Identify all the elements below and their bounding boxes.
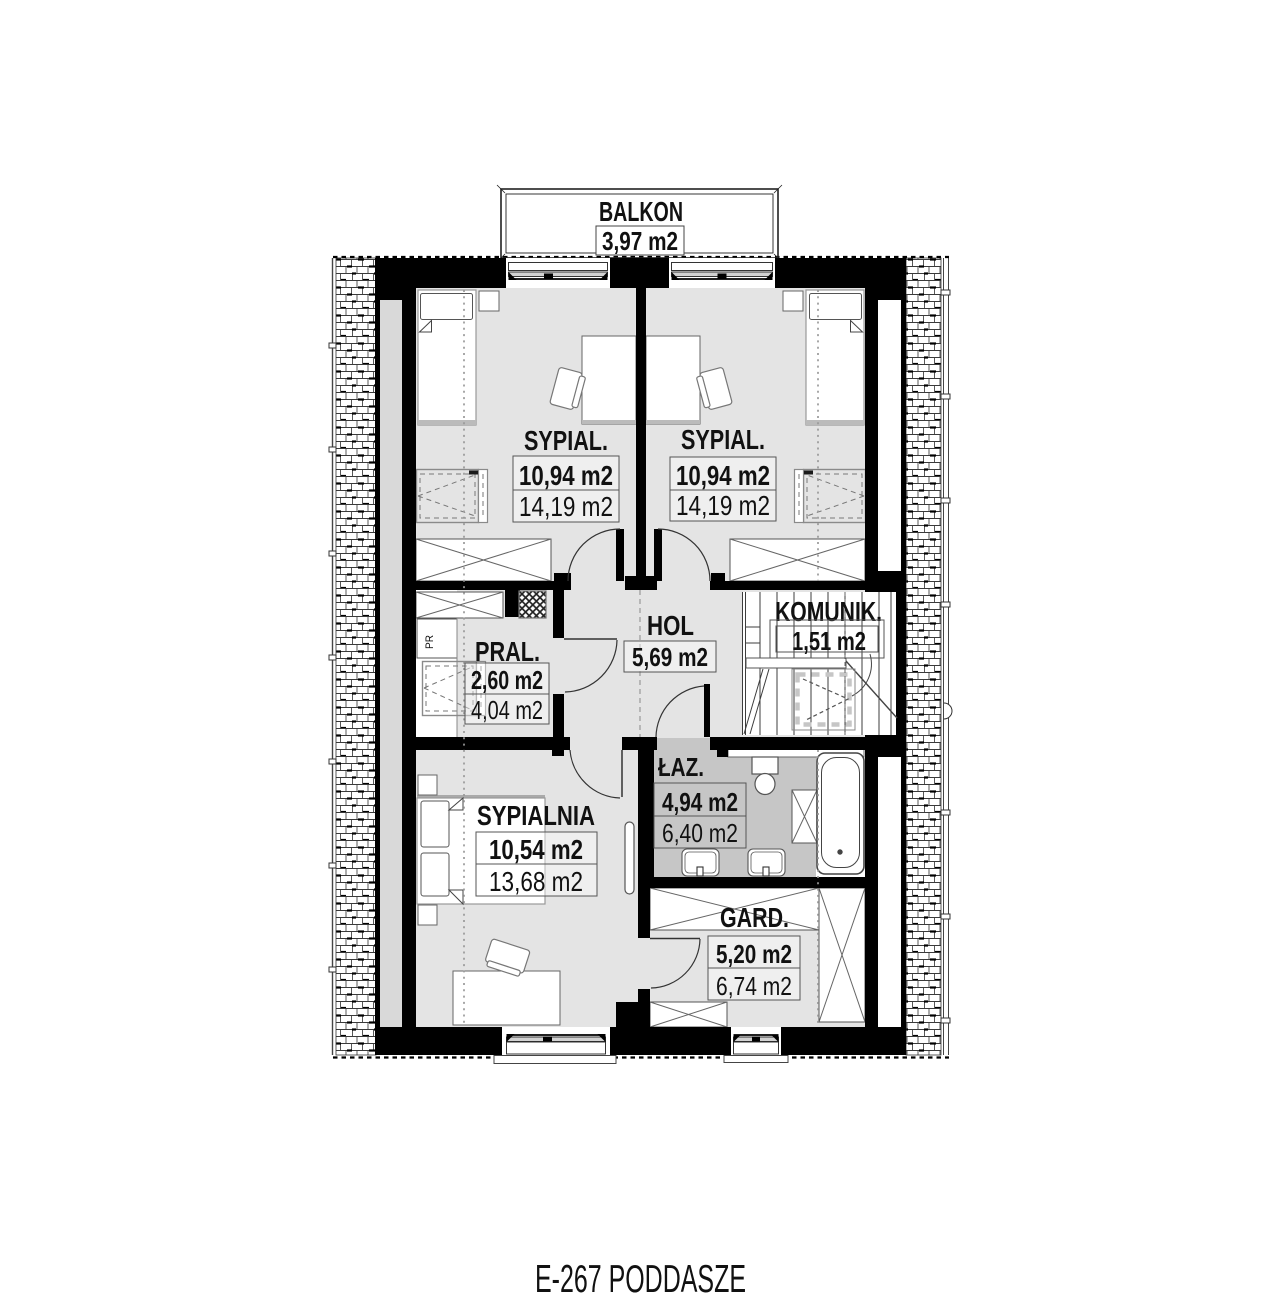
svg-text:6,40 m2: 6,40 m2	[662, 818, 738, 848]
svg-text:14,19 m2: 14,19 m2	[676, 490, 770, 521]
svg-text:PR: PR	[424, 635, 436, 649]
svg-text:13,68 m2: 13,68 m2	[489, 866, 583, 897]
svg-text:10,94 m2: 10,94 m2	[519, 460, 613, 491]
svg-text:10,94 m2: 10,94 m2	[676, 460, 770, 491]
svg-text:E-267 PODDASZE: E-267 PODDASZE	[535, 1258, 746, 1301]
svg-text:HOL: HOL	[647, 610, 694, 641]
svg-text:SYPIAL.: SYPIAL.	[524, 425, 608, 456]
svg-text:ŁAZ.: ŁAZ.	[658, 752, 704, 782]
svg-text:10,54 m2: 10,54 m2	[489, 834, 583, 865]
svg-text:GARD.: GARD.	[720, 902, 789, 933]
svg-text:14,19 m2: 14,19 m2	[519, 491, 613, 522]
svg-text:3,97 m2: 3,97 m2	[602, 226, 678, 256]
svg-text:6,74 m2: 6,74 m2	[716, 971, 792, 1001]
svg-text:1,51 m2: 1,51 m2	[792, 626, 866, 656]
svg-text:4,94 m2: 4,94 m2	[662, 787, 738, 817]
svg-text:5,69 m2: 5,69 m2	[632, 642, 708, 672]
svg-text:4,04 m2: 4,04 m2	[471, 695, 543, 725]
svg-text:KOMUNIK.: KOMUNIK.	[775, 596, 882, 627]
svg-text:5,20 m2: 5,20 m2	[716, 939, 792, 969]
svg-text:SYPIAL.: SYPIAL.	[681, 424, 765, 455]
svg-text:BALKON: BALKON	[599, 196, 683, 227]
svg-text:PRAL.: PRAL.	[475, 636, 540, 667]
svg-text:2,60 m2: 2,60 m2	[471, 665, 543, 695]
svg-text:SYPIALNIA: SYPIALNIA	[477, 800, 595, 831]
